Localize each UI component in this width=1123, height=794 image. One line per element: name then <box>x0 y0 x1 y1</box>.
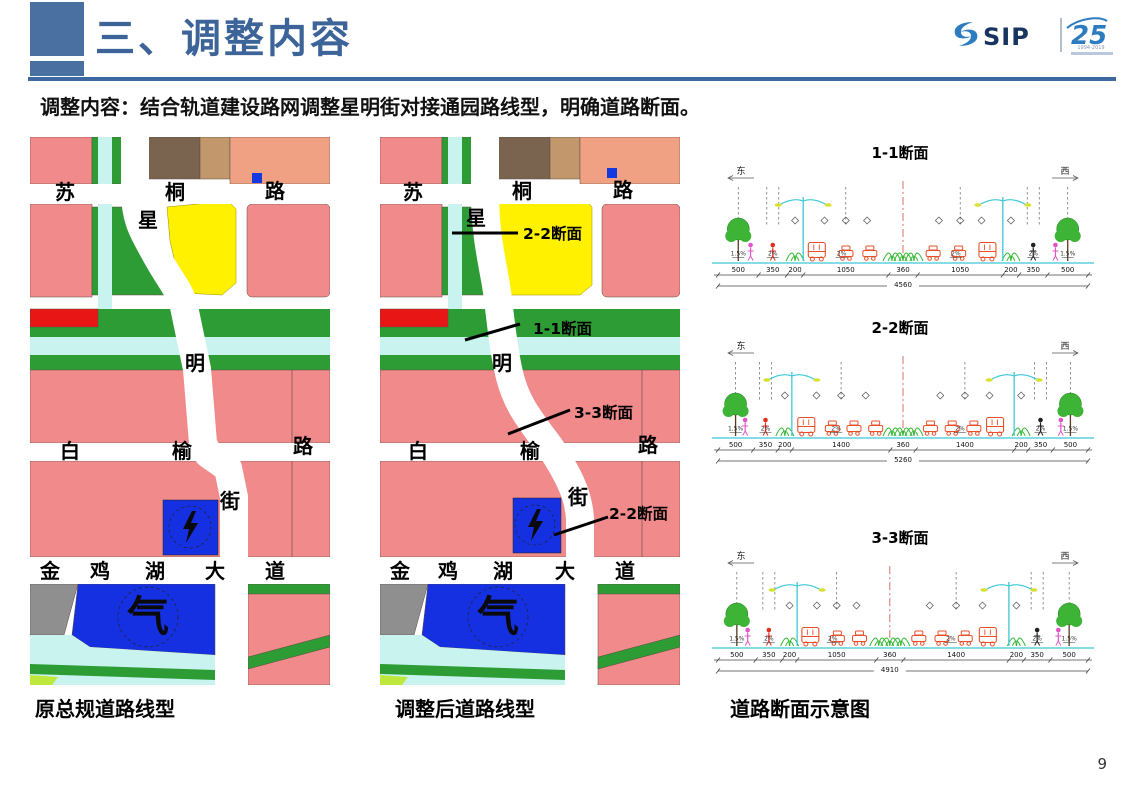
road-label-bai: 白 <box>408 439 428 463</box>
svg-text:2%: 2% <box>831 426 841 433</box>
slide: 三、调整内容 SIP 25 1994-2019 调整内容：结合轨道建设路网调整星… <box>0 0 1123 794</box>
svg-text:500: 500 <box>1064 441 1077 449</box>
svg-text:350: 350 <box>1034 441 1047 449</box>
svg-text:1.5%: 1.5% <box>731 251 747 258</box>
svg-text:2%: 2% <box>768 251 778 258</box>
title-decoration-bar <box>30 61 84 76</box>
gas-station-symbol: 气 <box>468 587 528 647</box>
anniversary-years: 1994-2019 <box>1077 45 1104 51</box>
gas-label: 气 <box>127 592 169 641</box>
sip-brand-text: SIP <box>983 23 1030 51</box>
section-drawing-2-2: 东西1.5%2%2%2%2%1.5%5003502001400360140020… <box>700 340 1123 490</box>
svg-text:350: 350 <box>759 441 772 449</box>
svg-text:东: 东 <box>736 165 745 177</box>
road-label-xing: 星 <box>466 206 486 230</box>
svg-text:200: 200 <box>788 266 801 274</box>
svg-text:350: 350 <box>766 266 779 274</box>
svg-text:200: 200 <box>1010 651 1023 659</box>
road-label-ji: 鸡 <box>89 559 110 583</box>
title-decoration-square <box>30 2 84 56</box>
svg-text:4910: 4910 <box>881 666 899 674</box>
svg-text:360: 360 <box>896 441 909 449</box>
road-label-xing: 星 <box>138 208 158 232</box>
svg-text:500: 500 <box>1061 266 1074 274</box>
section-svg: 东西1.5%2%2%2%2%1.5%5003502001050360105020… <box>700 165 1106 311</box>
road-label-dao: 道 <box>265 559 285 583</box>
svg-text:2%: 2% <box>955 426 965 433</box>
road-label-yu: 榆 <box>172 439 193 463</box>
caption-original: 原总规道路线型 <box>35 693 175 722</box>
road-label-lu: 路 <box>613 178 634 202</box>
road-label-jie: 街 <box>219 489 240 513</box>
sip-logo: SIP 25 1994-2019 <box>945 12 1117 62</box>
gas-station-symbol: 气 <box>118 587 178 647</box>
svg-text:200: 200 <box>1004 266 1017 274</box>
svg-text:200: 200 <box>778 441 791 449</box>
road-label-hu: 湖 <box>145 559 165 583</box>
road-label-jin: 金 <box>389 559 411 583</box>
svg-text:1050: 1050 <box>951 266 969 274</box>
svg-text:东: 东 <box>736 340 745 352</box>
road-label-su: 苏 <box>403 180 423 204</box>
svg-text:2%: 2% <box>1036 426 1046 433</box>
section-title-3-3: 3-3断面 <box>700 527 1100 548</box>
gas-label: 气 <box>477 592 519 641</box>
svg-text:500: 500 <box>1062 651 1075 659</box>
road-label-tong: 桐 <box>165 180 185 204</box>
road-label-lu2: 路 <box>638 433 659 457</box>
road-label-da: 大 <box>555 559 575 583</box>
svg-text:200: 200 <box>1014 441 1027 449</box>
small-blue-parcel <box>252 173 262 183</box>
road-label-ji: 鸡 <box>437 559 458 583</box>
svg-text:1400: 1400 <box>956 441 974 449</box>
svg-text:350: 350 <box>1027 266 1040 274</box>
road-label-lu2: 路 <box>293 434 314 458</box>
header-divider <box>28 77 1116 81</box>
svg-text:1400: 1400 <box>947 651 965 659</box>
road-label-lu: 路 <box>265 179 286 203</box>
road-label-su: 苏 <box>55 180 75 204</box>
svg-text:2%: 2% <box>761 426 771 433</box>
svg-text:1.5%: 1.5% <box>729 636 745 643</box>
map-adjusted-alignment: 气 苏 桐 路 星 明 街 白 榆 路 金 鸡 湖 大 道 2-2断面 1-1断… <box>380 137 680 685</box>
road-label-bai: 白 <box>60 439 80 463</box>
svg-text:东: 东 <box>736 550 745 562</box>
anniversary-tagline-bar <box>1071 52 1113 55</box>
svg-text:2%: 2% <box>837 251 847 258</box>
road-label-da: 大 <box>205 559 225 583</box>
svg-text:1.5%: 1.5% <box>1062 636 1078 643</box>
road-label-yu: 榆 <box>520 439 541 463</box>
svg-text:5260: 5260 <box>894 456 912 464</box>
section-drawing-3-3: 东西1.5%2%2%2%2%1.5%5003502001050360140020… <box>700 550 1123 700</box>
svg-text:2%: 2% <box>1028 251 1038 258</box>
road-label-dao: 道 <box>615 559 635 583</box>
svg-text:2%: 2% <box>764 636 774 643</box>
svg-text:1050: 1050 <box>837 266 855 274</box>
section-svg: 东西1.5%2%2%2%2%1.5%5003502001400360140020… <box>700 340 1106 486</box>
section-svg: 东西1.5%2%2%2%2%1.5%5003502001050360140020… <box>700 550 1106 696</box>
svg-text:360: 360 <box>883 651 896 659</box>
svg-text:西: 西 <box>1060 341 1069 352</box>
road-label-tong: 桐 <box>512 179 532 203</box>
svg-text:1.5%: 1.5% <box>1060 251 1076 258</box>
section-drawing-1-1: 东西1.5%2%2%2%2%1.5%5003502001050360105020… <box>700 165 1123 315</box>
svg-text:1.5%: 1.5% <box>1063 426 1079 433</box>
road-label-ming: 明 <box>492 351 512 375</box>
svg-text:350: 350 <box>1030 651 1043 659</box>
substation-block <box>513 498 561 553</box>
svg-text:360: 360 <box>896 266 909 274</box>
svg-text:1.5%: 1.5% <box>728 426 744 433</box>
svg-text:500: 500 <box>729 441 742 449</box>
annotation-1-1: 1-1断面 <box>533 319 592 338</box>
svg-text:2%: 2% <box>828 636 838 643</box>
svg-text:2%: 2% <box>1032 636 1042 643</box>
svg-text:西: 西 <box>1060 166 1069 177</box>
map-original-alignment: 气 苏 桐 路 星 明 街 白 榆 路 金 鸡 湖 大 道 <box>30 137 330 685</box>
page-number: 9 <box>1097 755 1107 773</box>
slide-subtitle: 调整内容：结合轨道建设路网调整星明街对接通园路线型，明确道路断面。 <box>40 91 700 120</box>
substation-block <box>163 500 218 555</box>
svg-text:500: 500 <box>730 651 743 659</box>
page-title: 三、调整内容 <box>95 6 353 64</box>
cross-sections-panel: 1-1断面 东西1.5%2%2%2%2%1.5%5003502001050360… <box>700 142 1123 702</box>
road-label-jie: 街 <box>567 485 588 509</box>
svg-text:200: 200 <box>783 651 796 659</box>
section-title-2-2: 2-2断面 <box>700 317 1100 338</box>
road-label-hu: 湖 <box>493 559 513 583</box>
road-label-jin: 金 <box>39 559 61 583</box>
caption-sections: 道路断面示意图 <box>730 693 870 722</box>
sip-swoosh-icon <box>955 22 978 46</box>
svg-text:西: 西 <box>1060 551 1069 562</box>
svg-text:350: 350 <box>762 651 775 659</box>
svg-text:1400: 1400 <box>832 441 850 449</box>
svg-text:1050: 1050 <box>828 651 846 659</box>
annotation-2-2-top: 2-2断面 <box>523 224 582 243</box>
road-label-ming: 明 <box>185 351 205 375</box>
small-blue-parcel <box>607 168 617 178</box>
annotation-3-3: 3-3断面 <box>574 403 633 422</box>
svg-text:500: 500 <box>732 266 745 274</box>
svg-text:2%: 2% <box>951 251 961 258</box>
section-title-1-1: 1-1断面 <box>700 142 1100 163</box>
caption-adjusted: 调整后道路线型 <box>395 693 535 722</box>
annotation-2-2-bottom: 2-2断面 <box>609 504 668 523</box>
svg-text:2%: 2% <box>946 636 956 643</box>
svg-text:4560: 4560 <box>894 281 912 289</box>
